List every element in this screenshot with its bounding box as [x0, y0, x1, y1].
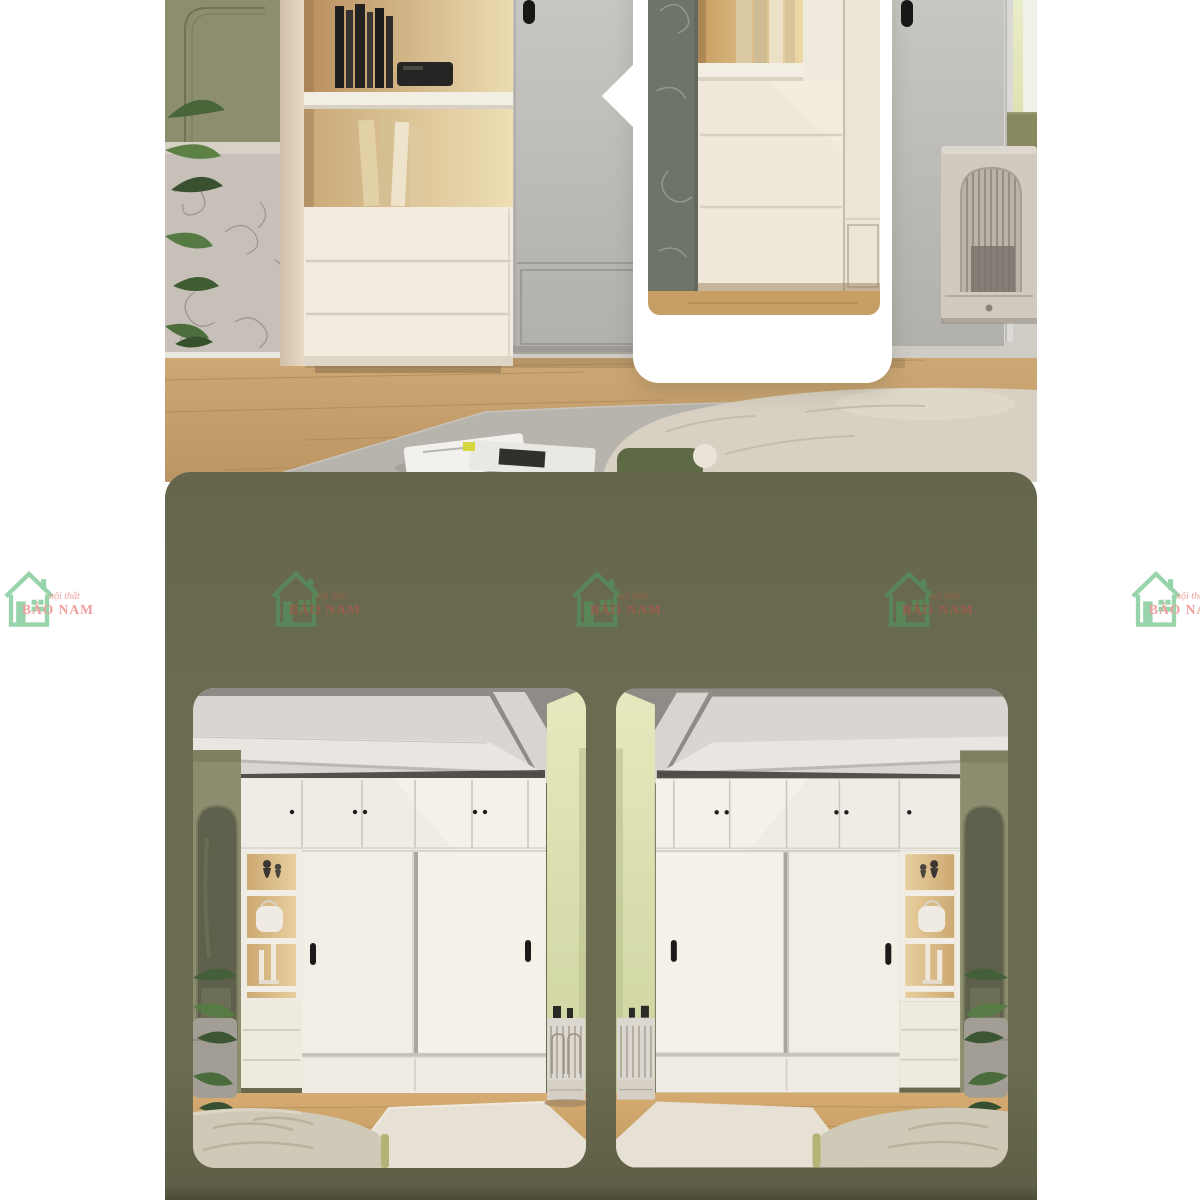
wardrobe-room-photo-right	[616, 688, 1008, 1168]
arch-mirror	[197, 806, 237, 1038]
baonam-watermark: nội thất BẢO NAM	[3, 568, 133, 634]
cabinet-drawers	[304, 207, 513, 366]
watermark-text: nội thất BẢO NAM	[22, 592, 94, 617]
wardrobe-top-cabinets	[241, 778, 546, 850]
watermark-name: BẢO NAM	[1149, 602, 1200, 617]
arched-nightstand	[941, 146, 1037, 324]
books-lower-shelf	[358, 118, 420, 206]
wardrobe-room-photo-left	[193, 688, 586, 1168]
slatted-crib	[544, 1006, 586, 1107]
baonam-watermark: nội thất BẢO NAM	[1130, 568, 1200, 634]
display-shelf	[241, 850, 302, 1088]
bench	[193, 1018, 237, 1098]
door-handle-right	[901, 0, 913, 27]
house-icon	[3, 568, 55, 628]
inset-wallpaper	[648, 0, 700, 291]
cream-cabinet	[280, 0, 513, 373]
door-handle-left	[310, 943, 316, 965]
ceiling	[193, 688, 586, 783]
house-icon	[1130, 568, 1182, 628]
right-side-scene	[892, 0, 1037, 346]
zoom-detail-callout	[633, 0, 892, 383]
bedroom-cabinet-photo	[165, 0, 1037, 482]
watermark-tagline: nội thất	[49, 592, 94, 602]
watermark-tagline: nội thất	[1176, 592, 1200, 602]
sliding-doors	[302, 850, 546, 1093]
watermark-name: BẢO NAM	[22, 602, 94, 617]
inset-drawers	[698, 81, 844, 291]
product-image-page: nội thất BẢO NAM nội thất BẢO NAM	[0, 0, 1200, 1200]
inset-side-cabinet	[844, 0, 880, 291]
inset-books	[736, 0, 795, 63]
zoomed-cabinet-inset-photo	[648, 0, 880, 315]
watermark-text: nội thất BẢO NAM	[1149, 592, 1200, 617]
door-handle-right	[525, 940, 531, 962]
door-handle	[523, 0, 535, 24]
